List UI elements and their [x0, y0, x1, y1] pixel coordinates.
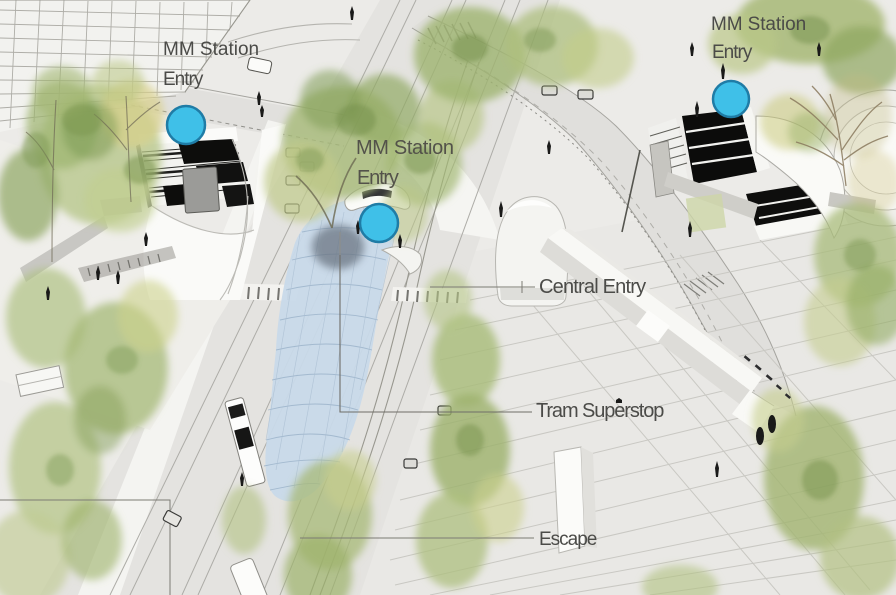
svg-text:MM Station: MM Station [163, 39, 259, 60]
svg-text:Entry: Entry [357, 167, 399, 189]
svg-text:Escape: Escape [539, 529, 597, 550]
svg-text:Tram Superstop: Tram Superstop [536, 400, 664, 422]
svg-text:Entry: Entry [712, 42, 753, 63]
svg-text:MM Station: MM Station [711, 14, 806, 35]
svg-text:MM Station: MM Station [356, 137, 454, 159]
svg-text:Entry: Entry [163, 69, 204, 90]
svg-text:Central Entry: Central Entry [539, 276, 646, 298]
